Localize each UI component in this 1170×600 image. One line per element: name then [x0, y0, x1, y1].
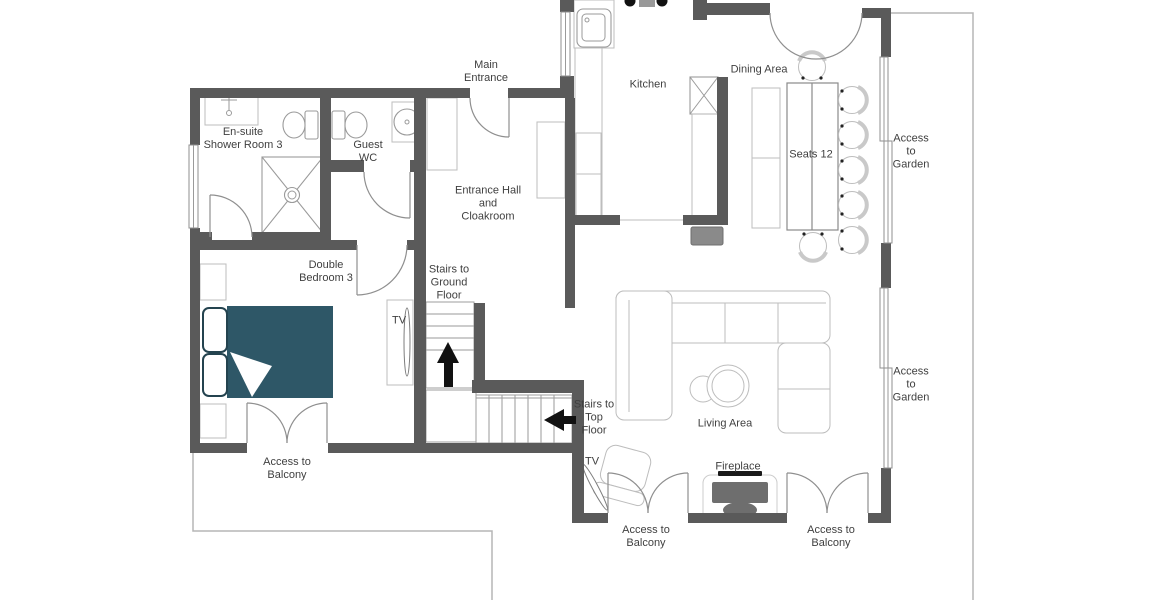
- ensuite-door: [210, 195, 252, 237]
- floor-plan-drawing: [0, 0, 1170, 600]
- dining-chair: [839, 87, 867, 114]
- pillow: [203, 354, 227, 396]
- bedroom-balcony-doors: [247, 403, 327, 443]
- tv-panel-bedroom: [387, 300, 413, 385]
- dining-chair: [839, 157, 867, 184]
- coffee-tables: [690, 365, 749, 407]
- living-balcony-doors-right: [787, 473, 868, 513]
- vanity-sink: [205, 96, 258, 125]
- sofa: [616, 291, 830, 433]
- nightstand: [200, 404, 226, 438]
- bedroom-door: [357, 245, 407, 295]
- toilet-ensuite-icon: [283, 111, 318, 139]
- bed-duvet: [227, 306, 333, 398]
- main-entrance-door: [470, 98, 509, 137]
- toilet-guest-icon: [332, 111, 367, 139]
- dining-chair: [839, 227, 867, 254]
- dining-table: [787, 83, 838, 230]
- balcony-outline-left: [193, 453, 492, 600]
- window: [884, 368, 892, 468]
- dining-chair: [839, 192, 867, 219]
- tv-screen-icon: [404, 308, 410, 376]
- kitchen-island-column: [690, 77, 718, 217]
- dining-chair: [799, 52, 826, 80]
- window: [561, 12, 570, 76]
- walls: [190, 0, 891, 523]
- shower-tray: [262, 157, 323, 233]
- kitchen-counter: [575, 48, 602, 218]
- kitchen-sink-icon: [574, 0, 614, 48]
- dining-chair: [839, 122, 867, 149]
- fireplace-mantel: [718, 471, 762, 476]
- window: [884, 141, 892, 243]
- garden-outline-right: [891, 13, 973, 600]
- window: [880, 288, 888, 368]
- floor-plan-canvas: Main Entrance En-suite Shower Room 3 Gue…: [0, 0, 1170, 600]
- nightstand: [200, 264, 226, 300]
- window: [189, 145, 198, 228]
- hall-cupboard: [427, 98, 457, 170]
- dining-bench: [752, 88, 780, 228]
- stair-landing: [426, 390, 476, 442]
- bed: [203, 306, 333, 398]
- pillow: [203, 308, 227, 352]
- media-unit: [691, 227, 723, 245]
- dining-chair: [800, 232, 827, 260]
- guest-wc-door: [364, 172, 410, 218]
- cloakroom-closet: [537, 122, 565, 198]
- stove-icon: [625, 0, 668, 7]
- window: [880, 57, 888, 141]
